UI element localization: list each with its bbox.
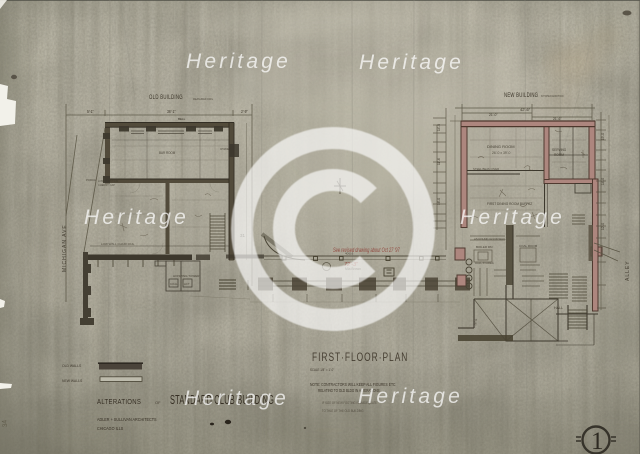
svg-text:SCALE 1/8" = 1'-0": SCALE 1/8" = 1'-0": [310, 368, 335, 372]
svg-text:BELL: BELL: [178, 117, 186, 121]
svg-text:42'-6": 42'-6": [520, 107, 531, 112]
svg-text:ROOM: ROOM: [554, 153, 564, 157]
svg-text:DINING ROOM: DINING ROOM: [487, 144, 515, 149]
svg-text:LOW WALL CHAIR RAIL: LOW WALL CHAIR RAIL: [101, 242, 135, 246]
svg-text:HALL IN AREA: HALL IN AREA: [475, 261, 494, 265]
svg-text:Heritage: Heritage: [184, 387, 289, 410]
svg-text:KITCHEN ADDITION: KITCHEN ADDITION: [541, 94, 563, 98]
svg-text:34: 34: [1, 419, 9, 427]
svg-text:CHERRY CAP: CHERRY CAP: [98, 183, 115, 187]
svg-text:COAL ROOM: COAL ROOM: [519, 244, 538, 248]
svg-text:Heritage: Heritage: [186, 50, 291, 73]
svg-text:HALL: HALL: [554, 306, 563, 310]
svg-text:LOW PARTITION: LOW PARTITION: [98, 179, 118, 183]
svg-text:14'-0: 14'-0: [437, 124, 441, 131]
svg-text:Heritage: Heritage: [460, 206, 565, 229]
svg-text:NEW WALLS: NEW WALLS: [62, 379, 83, 383]
svg-text:PORCH: PORCH: [86, 178, 96, 182]
svg-text:STEEL BEAM OVER: STEEL BEAM OVER: [473, 167, 499, 171]
svg-text:OLD BUILDING: OLD BUILDING: [149, 94, 183, 101]
svg-text:ADLER + SULLIVAN ARCHITECTS: ADLER + SULLIVAN ARCHITECTS: [97, 417, 157, 422]
svg-text:14'-0: 14'-0: [601, 178, 605, 185]
svg-text:ALLEY: ALLEY: [625, 260, 631, 281]
svg-text:Heritage: Heritage: [84, 206, 189, 229]
svg-text:SERVING: SERVING: [552, 148, 567, 152]
svg-text:5'-1": 5'-1": [87, 110, 94, 114]
svg-text:FIRST·FLOOR·PLAN: FIRST·FLOOR·PLAN: [312, 352, 408, 365]
svg-text:12'-0: 12'-0: [601, 223, 605, 230]
svg-text:BOILER RM: BOILER RM: [476, 245, 493, 249]
svg-text:Heritage: Heritage: [358, 385, 463, 408]
svg-text:21'-6": 21'-6": [553, 117, 562, 121]
svg-text:OLD WALLS: OLD WALLS: [62, 364, 82, 368]
svg-text:AS FOUND GOOD WALL: AS FOUND GOOD WALL: [474, 237, 507, 241]
svg-text:MICHIGAN AVE: MICHIGAN AVE: [62, 224, 68, 272]
svg-text:2'-9": 2'-9": [241, 110, 248, 114]
svg-text:LIFT: LIFT: [184, 282, 190, 286]
svg-text:40616: 40616: [345, 252, 354, 256]
svg-text:11'-6: 11'-6: [437, 158, 441, 165]
svg-text:26'-0 x 39'-0: 26'-0 x 39'-0: [492, 151, 511, 155]
svg-text:TO THAT OF THE OLD BUILDING: TO THAT OF THE OLD BUILDING: [322, 409, 364, 414]
svg-text:Heritage: Heritage: [359, 51, 464, 74]
svg-text:HOISTING TOWER: HOISTING TOWER: [173, 274, 200, 278]
svg-text:CHIMNEY: CHIMNEY: [220, 147, 231, 152]
svg-text:CHICAGO ILLS: CHICAGO ILLS: [97, 426, 123, 431]
svg-text:16'-0: 16'-0: [437, 198, 441, 205]
svg-text:19'-0: 19'-0: [601, 133, 605, 140]
svg-text:ALTERATIONS: ALTERATIONS: [97, 398, 141, 406]
svg-text:1: 1: [591, 428, 604, 454]
svg-text:See revised drawing about Oct: See revised drawing about Oct 27 '97: [333, 247, 400, 254]
svg-text:36'-1": 36'-1": [167, 110, 176, 114]
svg-text:MEASURED DWG: MEASURED DWG: [193, 97, 213, 101]
svg-text:COAL: COAL: [170, 282, 178, 286]
svg-text:21'-0": 21'-0": [489, 113, 498, 117]
svg-text:BAR ROOM: BAR ROOM: [159, 151, 175, 156]
svg-text:NEW BUILDING: NEW BUILDING: [504, 92, 538, 99]
svg-text:OF: OF: [155, 400, 161, 405]
